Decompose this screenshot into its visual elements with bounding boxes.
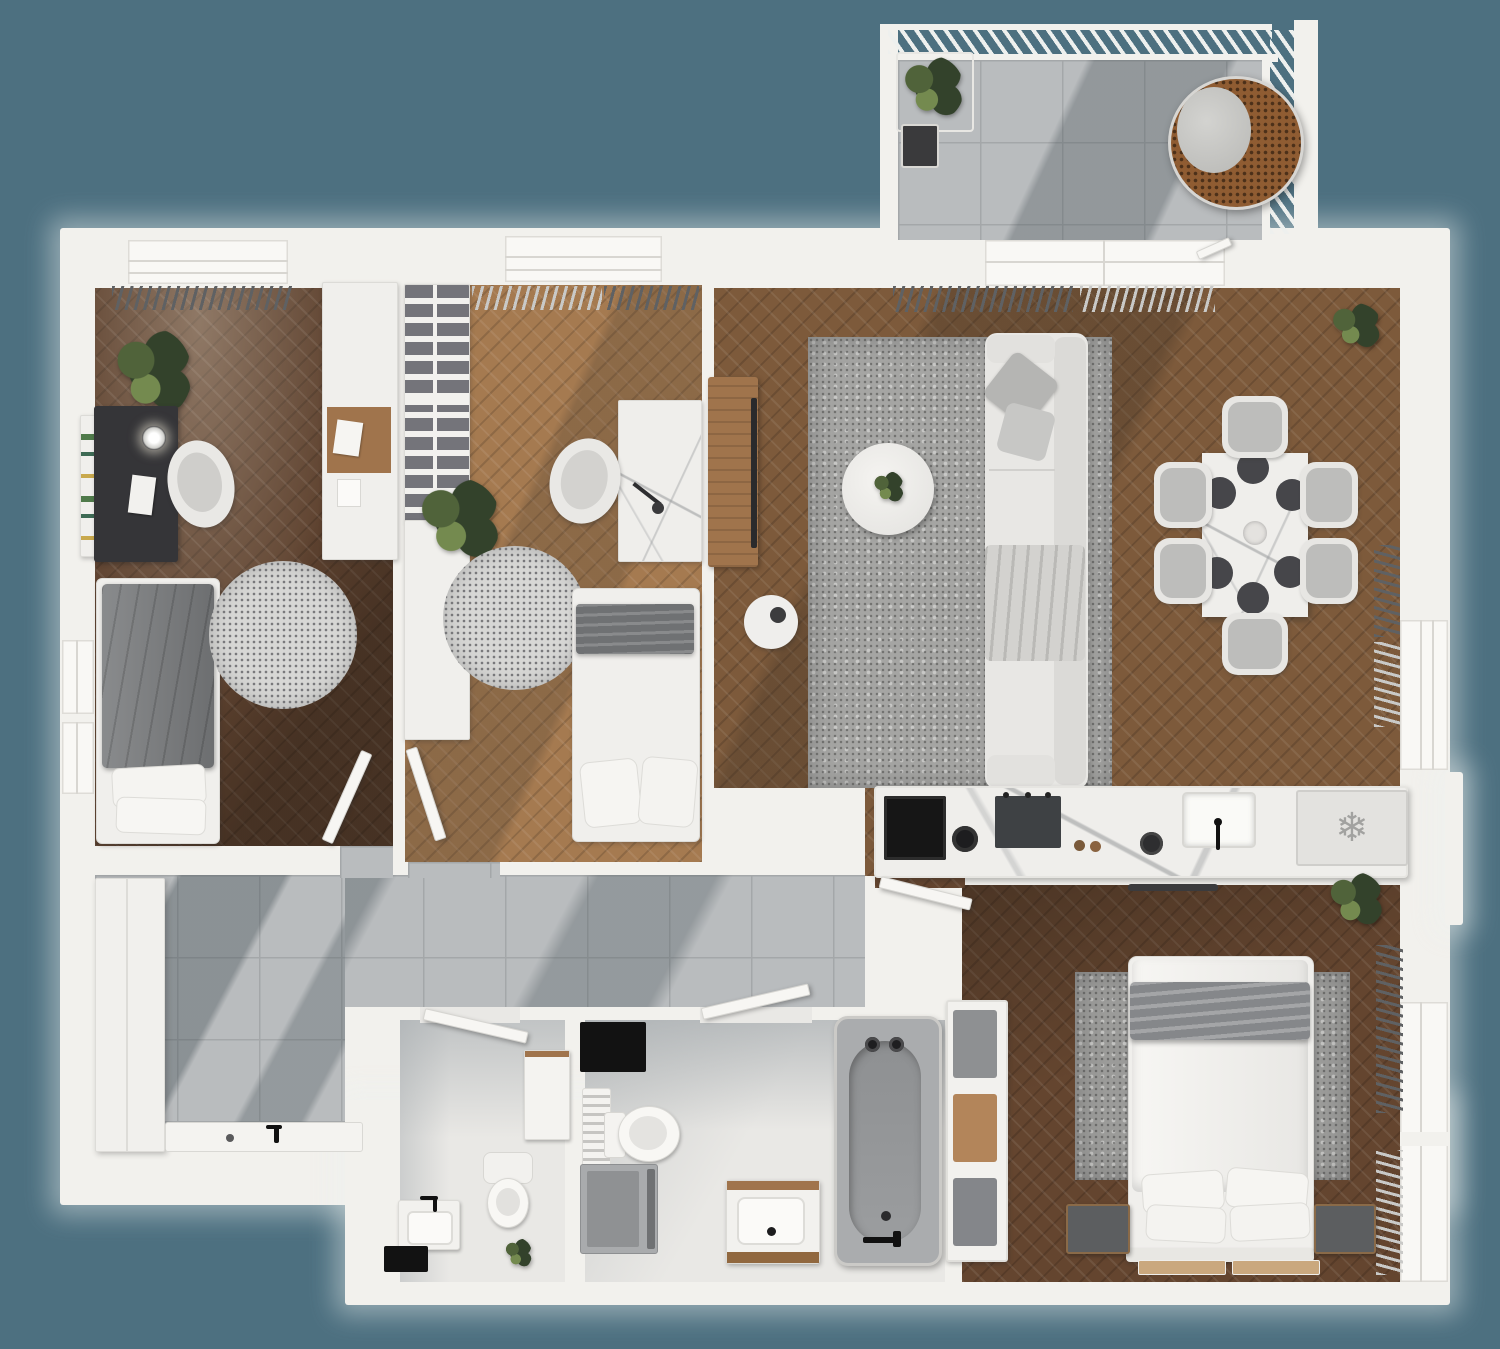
office-window-left-1 (62, 640, 94, 714)
bathroom-mat (580, 1022, 646, 1072)
towel-shelf (946, 1000, 1008, 1262)
bedroom-plant (1326, 872, 1384, 930)
bathtub-knob-2 (889, 1037, 904, 1052)
nightstand-left (1066, 1204, 1130, 1254)
office-window-left-2 (62, 722, 94, 794)
office-door-threshold (340, 846, 393, 878)
kids-curtain-light (472, 286, 602, 310)
dining-chair-bottom (1222, 613, 1288, 675)
balcony-plant (900, 56, 964, 122)
dining-plant (1328, 303, 1382, 351)
coffee-table (842, 443, 934, 535)
kids-curtain-dark (604, 286, 699, 310)
dining-chair-left-2 (1154, 538, 1212, 604)
wc-vanity (398, 1200, 460, 1250)
bedroom-window-right (1400, 1002, 1448, 1282)
towel-gray-1 (953, 1010, 997, 1078)
kids-desk-lamp-head (652, 502, 664, 514)
dining-chair-right-2 (1300, 538, 1358, 604)
nightstand-right (1314, 1204, 1376, 1254)
kids-window-top (505, 236, 662, 282)
bathtub (834, 1016, 942, 1266)
living-curtain-dark (893, 286, 1073, 312)
living-window-right (1400, 620, 1448, 770)
office-window-top (128, 240, 288, 284)
sofa-blanket (985, 545, 1085, 661)
bathtub-knob-1 (865, 1037, 880, 1052)
bedroom-curtain-1 (1376, 945, 1403, 1113)
office-desk-paper (128, 475, 156, 516)
living-right-curtain-dark (1374, 545, 1400, 637)
hall-shower-tray (165, 1122, 363, 1152)
balcony-pot (901, 124, 939, 168)
tv-screen (751, 398, 757, 548)
wc-cabinet (524, 1050, 570, 1140)
bedroom-curtain-2 (1376, 1150, 1403, 1275)
sofa-armrest-bottom (987, 755, 1055, 787)
fridge-snowflake-icon: ❄ (1335, 808, 1369, 848)
bathtub-faucet (863, 1237, 897, 1243)
office-curtain (112, 286, 292, 310)
wc-faucet (420, 1196, 438, 1200)
hall-cabinet (95, 878, 165, 1152)
side-table (744, 595, 798, 649)
towel-gray-2 (953, 1178, 997, 1246)
kitchen-jar-2 (1090, 841, 1101, 852)
kids-desk (618, 400, 702, 562)
washing-machine (580, 1164, 658, 1254)
bedroom-wall-rail (1128, 884, 1218, 891)
kitchen-oven (884, 796, 946, 860)
fridge: ❄ (1296, 790, 1408, 866)
office-daybed-pillow-2 (115, 796, 206, 835)
towel-wood-cell (953, 1094, 997, 1162)
living-right-curtain-light (1374, 642, 1400, 727)
master-bed-blanket (1130, 982, 1310, 1040)
bathtub-drain (881, 1211, 891, 1221)
kids-rug (443, 546, 587, 690)
kids-bed-blanket (576, 604, 694, 654)
sofa (985, 333, 1088, 789)
kitchen-faucet (1214, 818, 1222, 826)
kitchen-jar-1 (1074, 840, 1085, 851)
office-wall-cabinet (322, 282, 398, 560)
bathroom-vanity (726, 1180, 820, 1264)
wc-toilet-bowl (487, 1178, 529, 1228)
kids-door-threshold (408, 862, 500, 878)
kids-bed-pillow-2 (637, 756, 699, 829)
wc-mat (384, 1246, 428, 1272)
office-rug (209, 561, 357, 709)
vanity-basin (737, 1197, 805, 1245)
dining-chair-right-1 (1300, 462, 1358, 528)
tray-drain (226, 1134, 234, 1142)
kids-bed-pillow-1 (579, 757, 644, 829)
wc-basin (407, 1211, 453, 1245)
master-pillow-4 (1229, 1202, 1311, 1242)
dining-chair-top (1222, 396, 1288, 458)
kitchen-pot-1 (952, 826, 978, 852)
vanity-drain (767, 1227, 776, 1236)
living-curtain-light (1080, 286, 1215, 312)
bedside-mat-left (1138, 1260, 1226, 1275)
dining-plate-6 (1237, 582, 1269, 614)
kitchen-pot-2 (1140, 832, 1163, 855)
office-desk-lamp (142, 426, 166, 450)
office-daybed-duvet (102, 584, 214, 768)
floor-plan-scene: ❄ (0, 0, 1500, 1349)
dining-chair-left-1 (1154, 462, 1212, 528)
master-pillow-2 (1145, 1204, 1227, 1244)
bedside-mat-right (1232, 1260, 1320, 1275)
wall-pier-right (1445, 772, 1463, 925)
wc-plant (504, 1238, 532, 1270)
balcony-door-window (985, 240, 1225, 286)
bathroom-toilet-bowl (618, 1106, 680, 1162)
kitchen-cooktop (995, 796, 1061, 848)
hanging-egg-chair (1168, 76, 1304, 210)
